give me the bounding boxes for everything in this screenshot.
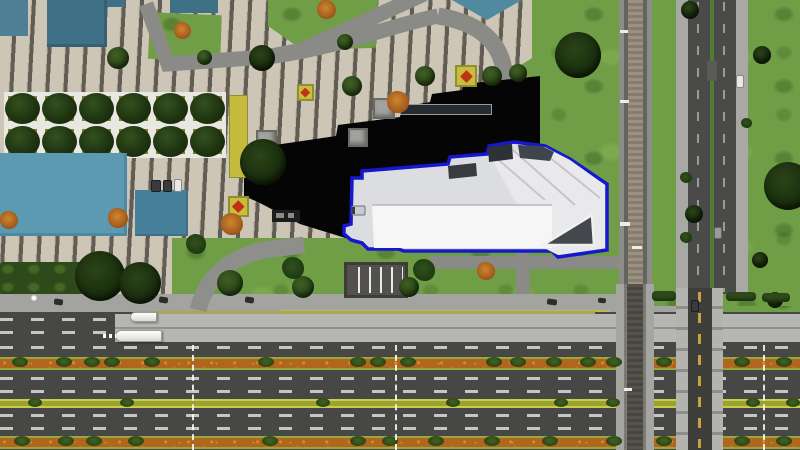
roof-vent-grill <box>288 213 294 218</box>
building-teal-a[interactable] <box>0 0 28 36</box>
building-teal-d[interactable] <box>170 0 218 13</box>
building-cyan-large[interactable] <box>0 153 127 236</box>
roof-vent-grill <box>276 213 284 218</box>
planter-red-pattern <box>235 100 239 176</box>
roof-dark-block <box>488 144 513 162</box>
building-teal-b[interactable] <box>47 0 107 47</box>
roof-panel-bright <box>372 205 552 248</box>
delivery-truck[interactable] <box>352 206 365 215</box>
city-scene <box>0 0 800 450</box>
driveway-curve <box>198 245 304 310</box>
building-teal-c[interactable] <box>107 0 125 7</box>
building-teal-small[interactable] <box>135 190 188 236</box>
